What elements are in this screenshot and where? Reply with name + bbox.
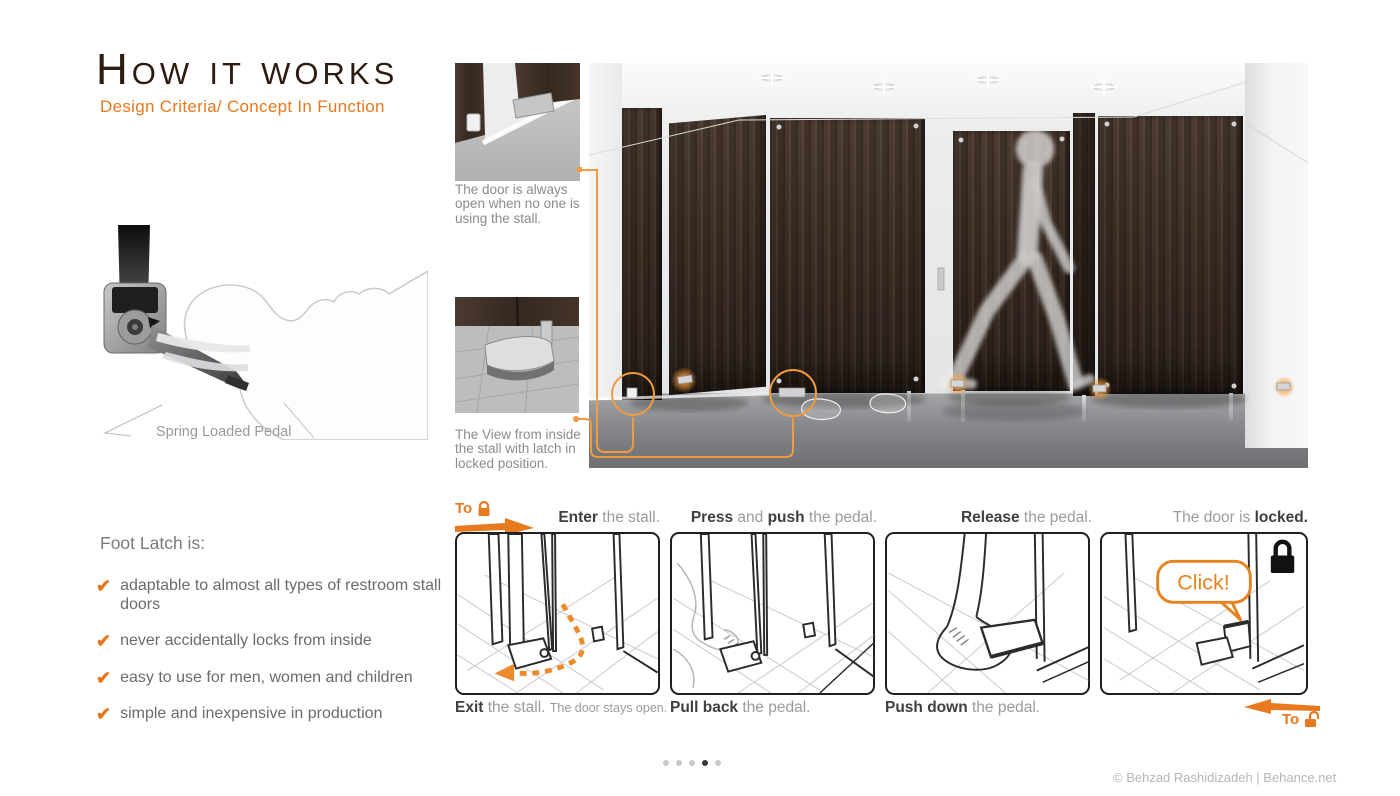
feature-text: adaptable to almost all types of restroo… [120,576,448,614]
page-title: How it works [96,48,398,92]
feature-heading: Foot Latch is: [100,533,448,554]
feature-text: never accidentally locks from inside [120,631,372,650]
ceiling-light-icon [759,70,1117,95]
feature-text: simple and inexpensive in production [120,704,382,723]
pagination-dot[interactable] [663,760,669,766]
pagination-dot[interactable] [702,760,708,766]
feature-list: Foot Latch is: ✔ adaptable to almost all… [96,533,448,740]
step-2-panel [670,532,875,695]
feature-item: ✔ simple and inexpensive in production [96,704,448,723]
click-speech-bubble: Click! [1158,561,1251,620]
pagination-dot[interactable] [715,760,721,766]
label-leader-line [105,405,162,436]
pagination-dot[interactable] [676,760,682,766]
spring-pedal-figure: Spring Loaded Pedal [88,225,428,440]
presentation-slide: How it works Design Criteria/ Concept In… [0,0,1400,796]
step-4-panel: Click! [1100,532,1308,695]
step-2-caption-bottom: Pull back the pedal. [670,699,810,717]
door-latch-keeper [467,114,480,131]
feature-item: ✔ easy to use for men, women and childre… [96,668,448,687]
ghost-person-silhouette [946,130,1090,386]
to-unlock-label: To [1282,711,1299,728]
main-photo-restroom [589,63,1308,468]
inset-caption-2: The View from inside the stall with latc… [455,428,591,471]
inset-photo-latch-locked [455,297,579,413]
feature-text: easy to use for men, women and children [120,668,413,687]
step-3-caption-top: Release the pedal. [885,509,1092,527]
click-label: Click! [1177,571,1229,595]
check-icon: ✔ [96,705,111,723]
step-3-illustration [887,534,1090,693]
check-icon: ✔ [96,669,111,687]
ghost-foot-outline [184,271,428,440]
check-icon: ✔ [96,632,111,650]
step-1-caption-top: Enter the stall. [455,509,660,527]
check-icon: ✔ [96,577,111,595]
pagination-dot[interactable] [689,760,695,766]
step-1-illustration [457,534,658,693]
spring-pedal-label: Spring Loaded Pedal [156,424,291,440]
step-1-caption-bottom: Exit the stall. The door stays open. [455,699,667,717]
spring-pedal-illustration [88,225,428,440]
to-unlock-badge: To [1282,711,1319,728]
step-4-illustration: Click! [1102,534,1306,693]
step-3-caption-bottom: Push down the pedal. [885,699,1040,717]
step-4-caption-top: The door is locked. [1100,509,1308,527]
lock-open-icon [1304,711,1319,728]
step-1-panel [455,532,660,695]
footer-credit: © Behzad Rashidizadeh | Behance.net [1113,770,1336,785]
step-3-panel [885,532,1090,695]
inset-photo-open-door [455,63,580,181]
scene-overlay [589,63,1308,468]
feature-item: ✔ adaptable to almost all types of restr… [96,576,448,614]
inset-caption-1: The door is always open when no one is u… [455,183,587,226]
step-2-illustration [672,534,875,693]
feature-item: ✔ never accidentally locks from inside [96,631,448,650]
pagination-dots [663,760,721,766]
page-subtitle: Design Criteria/ Concept In Function [100,97,385,117]
lock-closed-icon [1271,542,1294,573]
step-2-caption-top: Press and push the pedal. [670,509,877,527]
